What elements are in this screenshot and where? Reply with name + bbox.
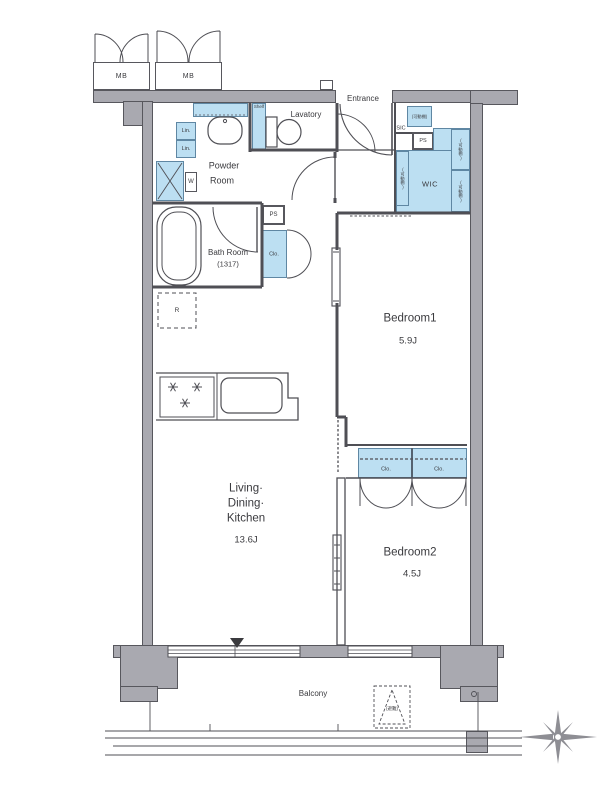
bathtub bbox=[157, 207, 201, 285]
bedroom2-closet-left-label: Clo. bbox=[381, 467, 391, 473]
refrigerator-label: R bbox=[175, 308, 180, 315]
bedroom1-size-label: 5.9J bbox=[399, 336, 417, 346]
bedroom1-label: Bedroom1 bbox=[383, 313, 436, 325]
bath-room-door bbox=[213, 207, 258, 252]
meter-box-doors bbox=[95, 31, 220, 62]
floor-plan: MB MB W PS PS Shelf Lin. Lin. (可動棚) (可動棚… bbox=[0, 0, 600, 800]
toilet bbox=[266, 117, 301, 147]
powder-room-door bbox=[292, 157, 335, 200]
balcony-label: Balcony bbox=[299, 690, 327, 698]
vanity-basin bbox=[195, 115, 246, 144]
bath-room-label-2: (1317) bbox=[217, 260, 239, 268]
powder-room-label-2: Room bbox=[210, 177, 234, 186]
sic-label: SIC bbox=[396, 126, 405, 132]
washing-machine-cross bbox=[158, 163, 182, 199]
wic-label: WIC bbox=[422, 180, 438, 188]
entrance-door bbox=[340, 103, 392, 155]
ldk-label-1: Living· bbox=[229, 483, 263, 495]
hall-closet-label: Clo. bbox=[269, 252, 279, 258]
balcony-windows bbox=[168, 646, 412, 657]
ldk-label-2: Dining· bbox=[228, 498, 264, 510]
stove-burners bbox=[168, 383, 202, 408]
bedroom2-closet-right-label: Clo. bbox=[434, 467, 444, 473]
balcony-railing bbox=[105, 692, 522, 756]
entrance-label: Entrance bbox=[345, 95, 381, 103]
ldk-label-3: Kitchen bbox=[227, 513, 265, 525]
powder-room-label-1: Powder bbox=[209, 162, 240, 171]
bath-room-label-1: Bath Room bbox=[208, 249, 248, 257]
lavatory-label: Lavatory bbox=[291, 111, 322, 119]
evacuation-hatch-label: (避難) bbox=[386, 707, 398, 712]
bedroom2-size-label: 4.5J bbox=[403, 569, 421, 579]
kitchen-counter bbox=[156, 373, 298, 420]
hall-closet-doors bbox=[287, 230, 311, 278]
compass-icon bbox=[520, 710, 597, 764]
bedroom1-sliding-door bbox=[332, 248, 340, 306]
ldk-size-label: 13.6J bbox=[234, 535, 257, 545]
linework-layer bbox=[0, 0, 600, 800]
bedroom2-label: Bedroom2 bbox=[383, 547, 436, 559]
